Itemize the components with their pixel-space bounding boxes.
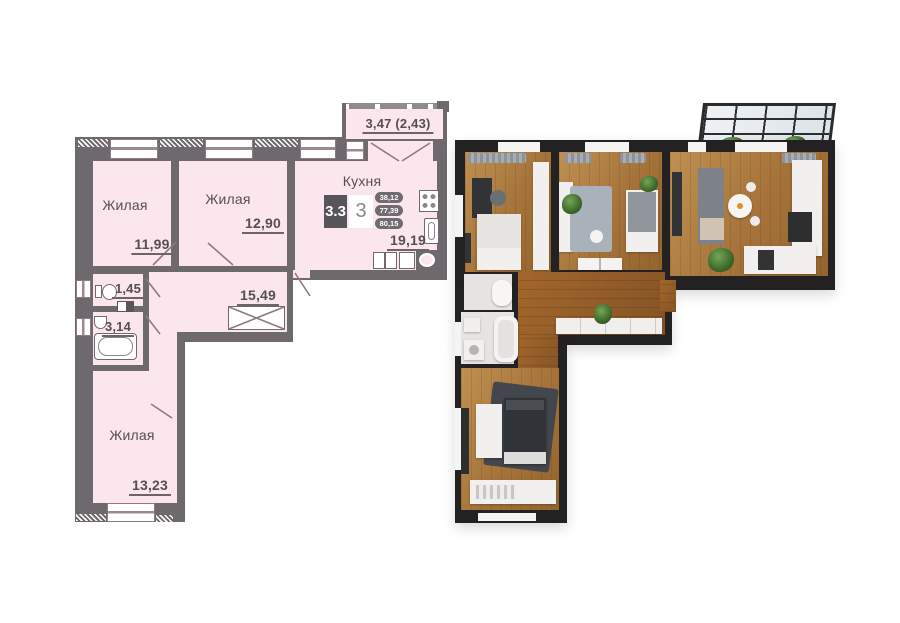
bed-3d-gray — [626, 190, 658, 252]
sink-bowl — [419, 253, 435, 267]
wall-hatch — [78, 139, 108, 147]
window — [107, 503, 155, 522]
wall-hatch — [156, 515, 173, 522]
room-area-hallway: 15,49 — [237, 287, 279, 306]
balcony-doorway-gap — [368, 141, 433, 162]
room-label-kitchen: Кухня — [343, 173, 381, 189]
toilet-3d — [492, 280, 512, 306]
bathtub-3d — [494, 316, 518, 362]
chair-3d — [490, 190, 506, 206]
tv-3d — [465, 233, 471, 263]
side-table-3d — [590, 230, 603, 243]
window — [300, 139, 336, 159]
balcony-area: 3,47 (2,43) — [362, 116, 433, 134]
kitchen-sink-unit-icon — [416, 250, 438, 270]
dining-table-3d — [728, 194, 752, 218]
room-area-wc: 1,45 — [112, 281, 144, 299]
kitchen-island-3d — [744, 246, 816, 274]
pillows — [506, 400, 544, 410]
kitchen-appliance-3d — [788, 212, 812, 242]
info-badge: 3.3 3 38,12 77,39 80,15 — [324, 192, 403, 229]
room-area-living-2: 12,90 — [242, 215, 284, 234]
chair-3d — [746, 182, 756, 192]
ventilation-shaft-icon — [117, 301, 134, 312]
render-window-gap — [498, 142, 540, 152]
radiator — [476, 485, 516, 499]
render-window-gap — [455, 195, 463, 237]
room-label-living-1: Жилая — [102, 197, 147, 213]
wall-hatch — [76, 514, 106, 521]
washbasin-3d — [464, 318, 480, 332]
room-label-living-3: Жилая — [109, 427, 154, 443]
render-hall-kitchen-opening — [660, 280, 676, 312]
room-area-living-3: 13,23 — [129, 477, 171, 496]
render-window-gap — [478, 513, 536, 521]
rooms-count-badge: 3 — [349, 195, 373, 228]
room-area-kitchen: 19,19 — [387, 232, 429, 251]
curtain-icon — [565, 153, 591, 163]
total-area-pill: 80,15 — [375, 218, 403, 229]
sink-basin — [428, 222, 435, 240]
washer-door — [469, 345, 479, 355]
curtain-icon — [468, 153, 526, 163]
render-window-gap — [735, 142, 787, 152]
bed-3d-dark — [504, 398, 546, 464]
kitchen-cabinet-icon — [399, 252, 415, 269]
bathtub-inner — [98, 337, 133, 356]
bed-3d-white — [477, 214, 521, 270]
render-window-gap — [585, 142, 629, 152]
dresser-3d — [476, 404, 502, 458]
plan-type-badge: 3.3 — [324, 195, 347, 228]
oven — [758, 250, 774, 270]
tv-unit-3d — [672, 172, 682, 236]
room-area-bathroom: 3,14 — [102, 319, 134, 337]
bathtub-icon — [94, 333, 137, 360]
room-living-2 — [179, 161, 287, 266]
wardrobe-icon — [228, 306, 285, 330]
stove-icon — [419, 190, 439, 212]
area-pills: 38,12 77,39 80,15 — [375, 192, 403, 229]
render-window-gap — [688, 142, 706, 152]
double-door-3d — [578, 258, 622, 270]
wall-art-3d — [461, 408, 469, 474]
sheet-fold — [504, 452, 546, 464]
window — [110, 139, 158, 159]
wardrobe-3d — [533, 162, 549, 270]
room-label-living-2: Жилая — [205, 191, 250, 207]
blanket — [628, 192, 656, 232]
washing-machine-icon — [373, 252, 397, 269]
kitchen-doorway-gap — [293, 270, 310, 278]
balcony-side-window — [346, 141, 364, 160]
washing-machine-3d — [464, 340, 484, 360]
floorplan-canvas: Жилая 11,99 Жилая 12,90 Кухня 19,19 1,45… — [0, 0, 900, 623]
toilet-tank-icon — [95, 285, 102, 298]
window — [205, 139, 253, 159]
room-area-living-1: 11,99 — [131, 236, 172, 255]
bathtub-basin — [498, 320, 514, 358]
wall-hatch — [160, 139, 203, 147]
wall-hatch — [255, 139, 298, 147]
table-decor — [737, 203, 743, 209]
window-small — [76, 280, 91, 298]
living-area-pill: 38,12 — [375, 192, 403, 203]
chair-3d — [750, 216, 760, 226]
sofa-throw — [700, 218, 724, 240]
window-small — [76, 318, 91, 336]
blanket — [477, 214, 521, 248]
curtain-icon — [620, 153, 646, 163]
balcony-right-wall — [443, 103, 447, 139]
desk-3d — [472, 178, 492, 218]
window-shelf-3d — [470, 480, 556, 504]
area-without-balcony-pill: 77,39 — [375, 205, 403, 216]
